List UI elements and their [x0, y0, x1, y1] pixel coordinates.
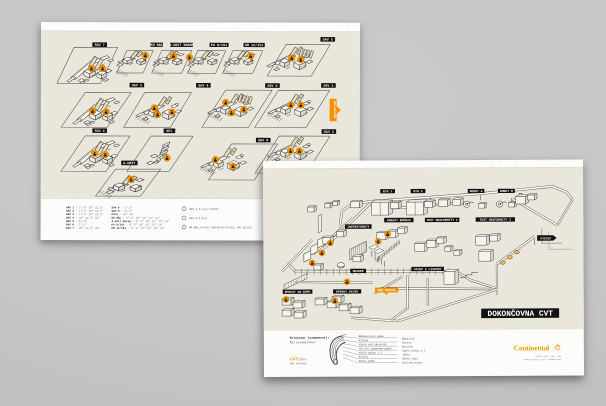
svg-text:Výplň patky č.2: Výplň patky č.2	[358, 350, 382, 354]
svg-text:Polotovar (component):: Polotovar (component):	[289, 335, 329, 339]
svg-text:GRADER: GRADER	[352, 269, 363, 273]
svg-text:SAV 9: SAV 9	[198, 85, 208, 89]
svg-text:KM 12/151 - 8" 9" 10" 12" 13": KM 12/151 - 8" 9" 10" 12" 13" 14"	[112, 226, 166, 230]
svg-text:SAV 1: SAV 1	[324, 85, 334, 89]
svg-text:PU 8/151: PU 8/151	[211, 43, 227, 48]
svg-text:G-UNIT: G-UNIT	[123, 162, 135, 166]
svg-text:RTG 1: RTG 1	[383, 189, 392, 193]
svg-text:TEST UNIFORMITY 1: TEST UNIFORMITY 1	[426, 218, 458, 222]
svg-text:NEW MACHINE: NEW MACHINE	[333, 102, 336, 119]
svg-text:SAV 3: SAV 3	[132, 85, 142, 89]
svg-text:Patní lano: Patní lano	[402, 356, 418, 360]
svg-text:Kostra: Kostra	[402, 340, 412, 344]
svg-text:ODB VRSTVA: ODB VRSTVA	[377, 289, 395, 292]
svg-text:Výztuže patky: Výztuže patky	[402, 360, 423, 364]
svg-text:SAV 4: SAV 4	[95, 130, 105, 134]
svg-text:Jádro: Jádro	[402, 352, 410, 356]
svg-text:KM 8B1: KM 8B1	[151, 44, 163, 48]
svg-text:SAV 6: SAV 6	[268, 85, 278, 89]
svg-text:KM 8BL,4-unit Barum,PU 8/151,: KM 8BL,4-unit Barum,PU 8/151, KM 12/151	[189, 226, 252, 230]
svg-text:KPL: KPL	[167, 130, 173, 134]
svg-text:Bočnice: Bočnice	[402, 344, 413, 348]
svg-text:Výplň patky č.1: Výplň patky č.1	[402, 348, 426, 352]
svg-text:Běhoun+spoj guma: Běhoun+spoj guma	[358, 334, 383, 338]
svg-text:Vnitřní guma+meziguma: Vnitřní guma+meziguma	[358, 346, 391, 350]
svg-text:SAV 5,6,8,9: SAV 5,6,8,9	[189, 217, 207, 220]
svg-text:CVTplus: CVTplus	[289, 356, 307, 361]
svg-text:SAV 1,2,3,4,7,PU/G: SAV 1,2,3,4,7,PU/G	[189, 207, 218, 211]
svg-text:Řez pneumatikou:: Řez pneumatikou:	[289, 340, 316, 344]
svg-text:ROBOT A: ROBOT A	[469, 189, 482, 193]
svg-text:VSTUP Z LISOVNY: VSTUP Z LISOVNY	[413, 267, 441, 271]
svg-text:Nárazník: Nárazník	[402, 336, 415, 340]
svg-text:SAV 5: SAV 5	[323, 39, 333, 43]
svg-text:KM 12/151: KM 12/151	[245, 44, 263, 49]
svg-text:RTG 2: RTG 2	[413, 189, 422, 193]
svg-text:DOKONČOVNA CVT: DOKONČOVNA CVT	[487, 308, 553, 318]
svg-text:SAV 7 - 20" 22,5" 24": SAV 7 - 20" 22,5" 24"	[66, 226, 100, 230]
svg-text:Výplň pod nárazník: Výplň pod nárazník	[358, 342, 386, 346]
svg-text:TEST UNIFORMITY 2: TEST UNIFORMITY 2	[479, 217, 511, 221]
svg-text:4-UNIT BARUM: 4-UNIT BARUM	[169, 44, 193, 48]
svg-text:Continental: Continental	[513, 343, 548, 352]
svg-text:OPRAVY VN.GUMY: OPRAVY VN.GUMY	[284, 290, 310, 294]
svg-text:SAV 7: SAV 7	[95, 44, 105, 48]
svg-text:INSPEKTOMATY: INSPEKTOMATY	[347, 224, 369, 228]
svg-text:OPRAVY PATEK: OPRAVY PATEK	[336, 289, 358, 293]
svg-text:SAV 2: SAV 2	[324, 131, 334, 135]
svg-text:Klínek: Klínek	[358, 338, 368, 342]
svg-text:SAV 8: SAV 8	[258, 140, 268, 144]
svg-text:Máš výrobek: Máš výrobek	[289, 362, 306, 365]
svg-text:ROBOT B: ROBOT B	[499, 189, 512, 193]
svg-text:Patní guma: Patní guma	[359, 358, 375, 362]
svg-text:OPRAVY BOČNIC: OPRAVY BOČNIC	[386, 218, 410, 222]
svg-text:výrobní kapacita foly: 30000ks: výrobní kapacita foly: 30000ks/den	[522, 358, 560, 361]
svg-text:Křídlo: Křídlo	[359, 354, 369, 358]
